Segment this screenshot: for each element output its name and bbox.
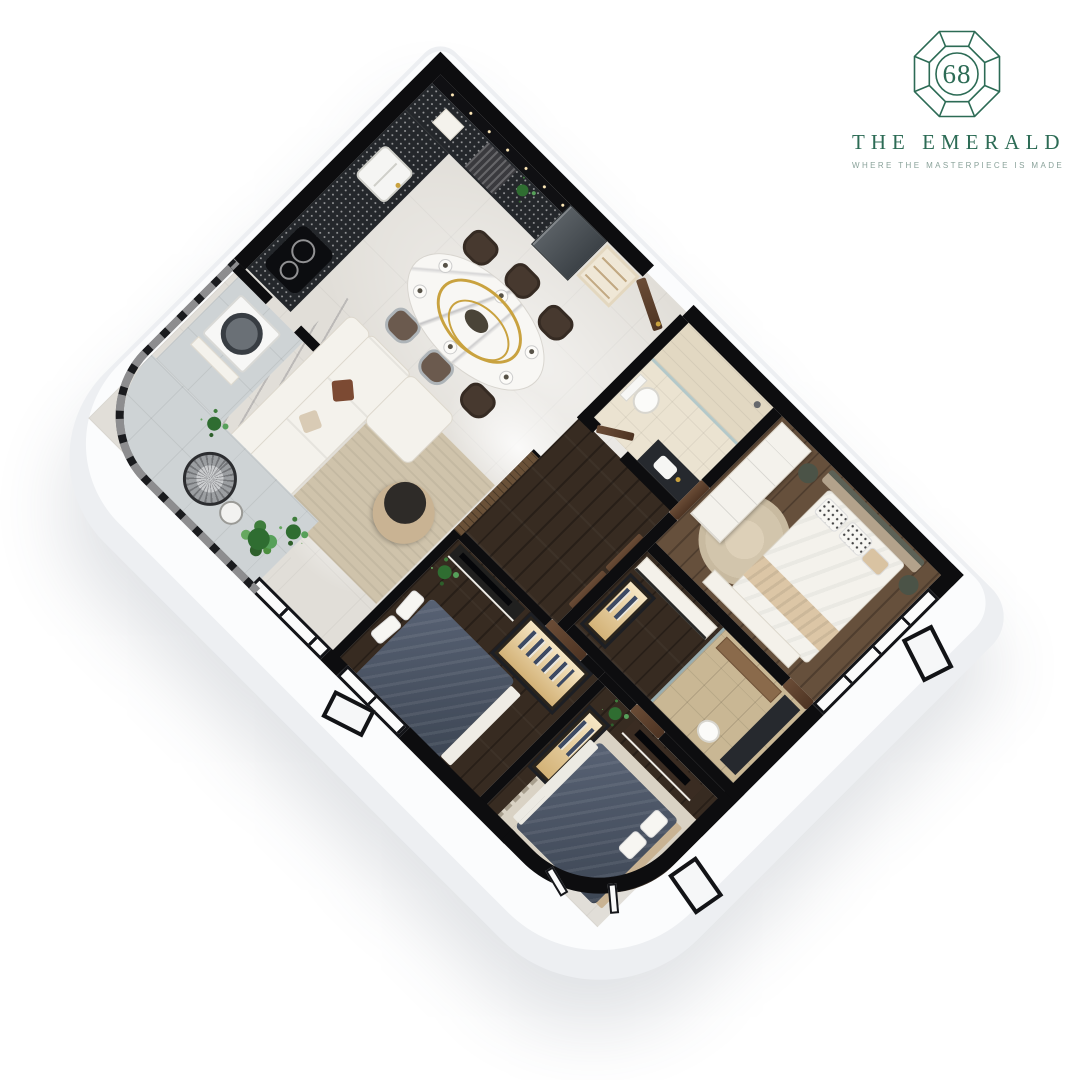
brand-tagline: WHERE THE MASTERPIECE IS MADE [852, 161, 1062, 170]
emerald-gem-icon: 68 [909, 26, 1005, 122]
brand-name: THE EMERALD [852, 130, 1062, 155]
poster: 68 THE EMERALD WHERE THE MASTERPIECE IS … [0, 0, 1080, 1080]
logo-number: 68 [909, 26, 1005, 122]
brand-logo: 68 THE EMERALD WHERE THE MASTERPIECE IS … [852, 26, 1062, 170]
